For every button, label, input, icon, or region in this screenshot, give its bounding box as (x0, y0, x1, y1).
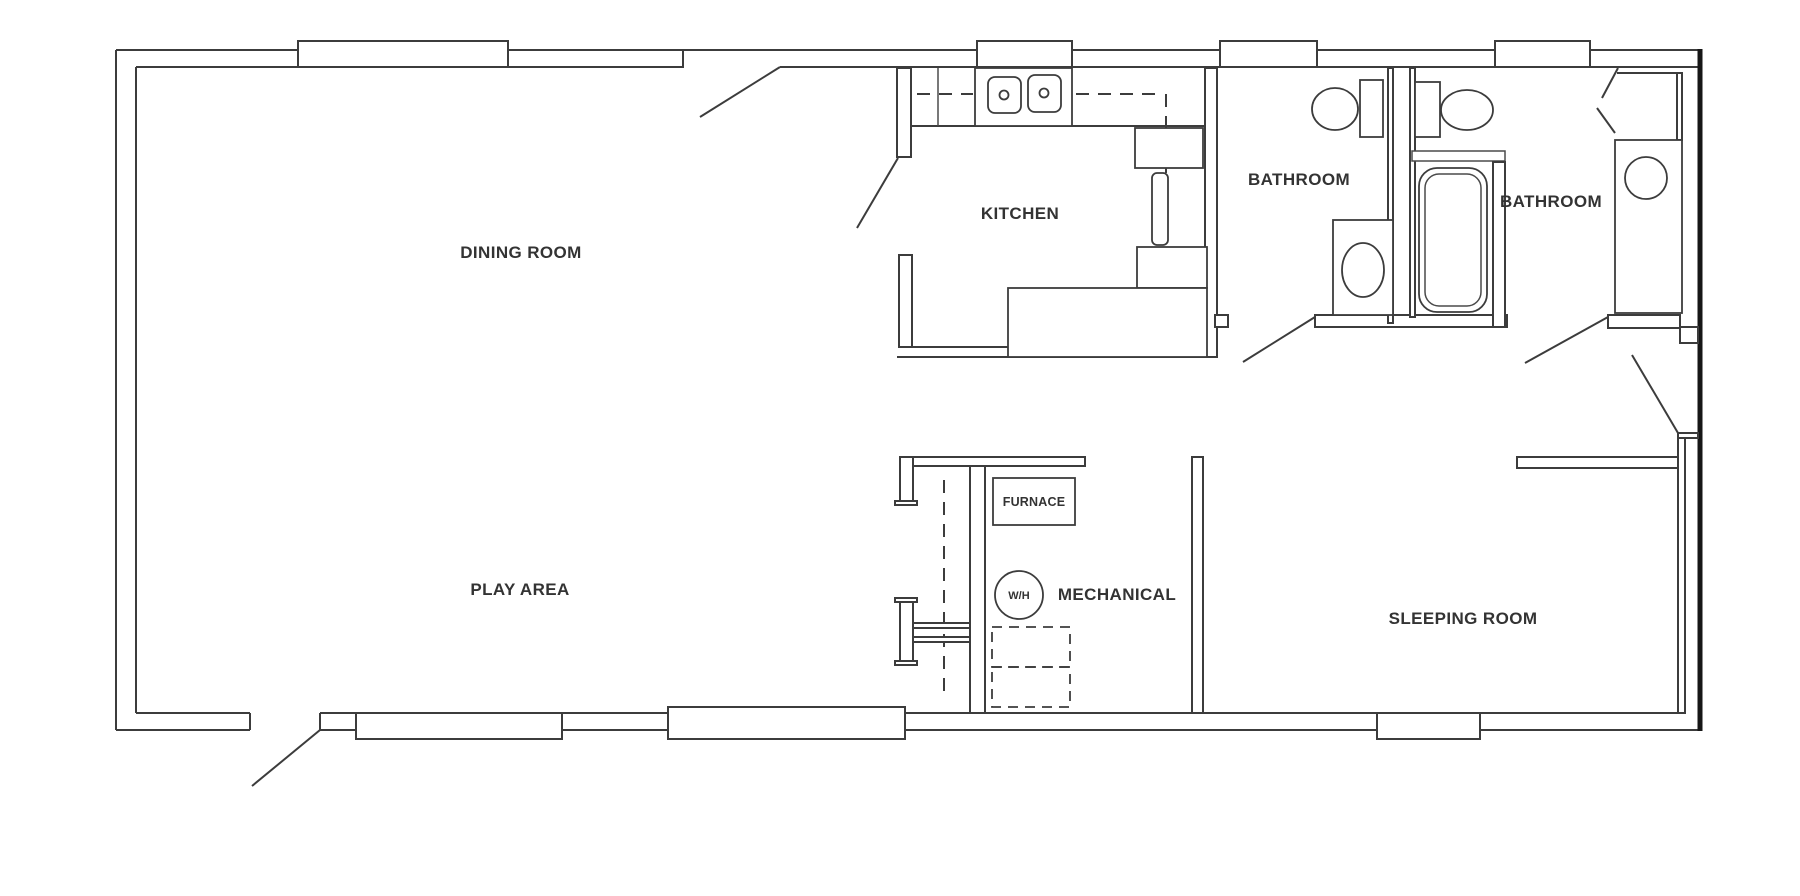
chase-wall-cap (895, 661, 917, 665)
window-top-bathroom-2 (1495, 41, 1590, 67)
tub-surround-wall (1493, 162, 1505, 327)
sleeping-right-inner-wall (1678, 438, 1685, 713)
play-area-label: PLAY AREA (470, 580, 569, 599)
chase-wall-cap (895, 501, 917, 505)
furnace-label: FURNACE (1003, 495, 1066, 509)
island-counter (1008, 288, 1207, 357)
bathroom-2-door-swing (1525, 317, 1608, 363)
kitchen-left-wall-upper (897, 68, 911, 157)
mechanical-top-wall (902, 457, 1085, 466)
toilet-icon (1441, 90, 1493, 130)
sleeping-room-label: SLEEPING ROOM (1389, 609, 1538, 628)
bathtub-inner (1425, 174, 1481, 306)
hall-wall-tab (1215, 315, 1228, 327)
bathroom-1-fixtures (1312, 80, 1393, 315)
chase-connector (913, 623, 970, 628)
bathroom-bottom-wall-right (1608, 315, 1680, 328)
toilet-tank-icon (1415, 82, 1440, 137)
bathroom-1-door-swing (1243, 317, 1315, 362)
chase-wall (900, 602, 913, 665)
kitchen-left-wall-lower (899, 255, 912, 347)
sink-icon (1342, 243, 1384, 297)
exterior-doors (250, 67, 780, 786)
range-icon (1137, 247, 1207, 288)
closet-door-swing (1597, 108, 1615, 133)
window-top-1 (298, 41, 508, 67)
chase-connector (913, 637, 970, 642)
sleeping-top-wall (1517, 457, 1680, 468)
water-heater-label: W/H (1008, 590, 1029, 602)
chase-wall (900, 457, 913, 505)
window-top-bathroom-1 (1220, 41, 1317, 67)
dining-room-label: DINING ROOM (460, 243, 582, 262)
closet-wall (1677, 73, 1682, 140)
window-top-kitchen (977, 41, 1072, 67)
toilet-tank-icon (1360, 80, 1383, 137)
kitchen-label: KITCHEN (981, 204, 1059, 223)
tub-shelf (1412, 151, 1505, 161)
wall-step (1680, 327, 1698, 343)
bathroom-1-label: BATHROOM (1248, 170, 1350, 189)
sink-icon (1625, 157, 1667, 199)
window-top-2 (508, 50, 683, 67)
window-bottom-play-area (356, 713, 562, 739)
mechanical-right-wall (1192, 457, 1203, 713)
floor-plan: DINING ROOM KITCHEN BATHROOM BATHROOM PL… (0, 0, 1800, 896)
sleeping-room-walls (1517, 355, 1698, 713)
closet-door-swing (1602, 68, 1618, 98)
floor-plan-drawing: DINING ROOM KITCHEN BATHROOM BATHROOM PL… (0, 0, 1800, 896)
oven-icon (1152, 173, 1168, 245)
kitchen-door-swing (857, 158, 898, 228)
window-bottom-center (668, 707, 905, 739)
entry-door-swing (700, 67, 780, 117)
sink-drain-icon (1040, 89, 1049, 98)
sleeping-door-swing (1632, 355, 1678, 433)
toilet-icon (1312, 88, 1358, 130)
chase-wall-right (970, 466, 985, 713)
window-bottom-sleeping (1377, 713, 1480, 739)
sink-drain-icon (1000, 91, 1009, 100)
refrigerator-icon (1135, 128, 1203, 168)
mechanical-label: MECHANICAL (1058, 585, 1176, 604)
play-area-door-swing (252, 730, 320, 786)
washer-dashed-icon (992, 627, 1070, 667)
dryer-dashed-icon (992, 667, 1070, 707)
bathroom-2-label: BATHROOM (1500, 192, 1602, 211)
